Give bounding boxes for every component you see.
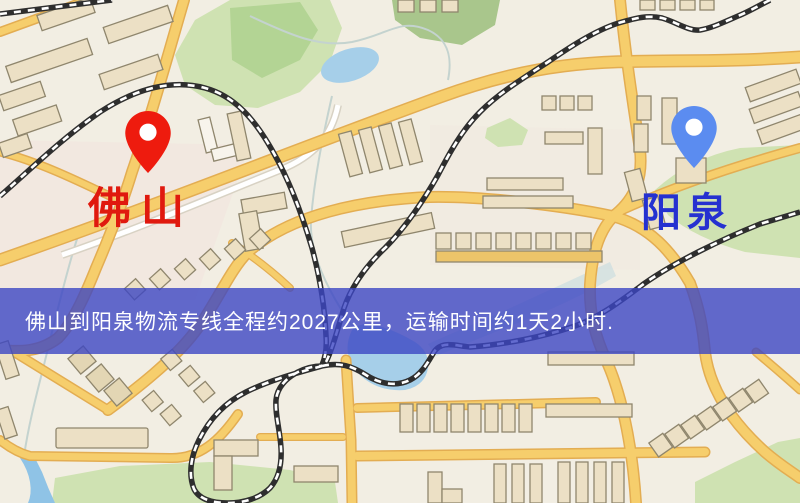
map-canvas[interactable]: 佛山 阳泉 佛山到阳泉物流专线全程约2027公里，运输时间约1天2小时. [0, 0, 800, 503]
origin-label: 佛山 [88, 174, 194, 236]
pin-icon [125, 111, 171, 173]
route-info-banner: 佛山到阳泉物流专线全程约2027公里，运输时间约1天2小时. [0, 288, 800, 354]
destination-pin-marker[interactable] [671, 106, 717, 168]
origin-pin-marker[interactable] [125, 111, 171, 173]
map-artwork [0, 0, 800, 503]
pin-hole [139, 124, 156, 141]
pin-body [125, 111, 170, 173]
pin-body [671, 106, 716, 168]
destination-label: 阳泉 [641, 180, 733, 238]
pin-hole [685, 119, 702, 136]
pin-icon [671, 106, 717, 168]
route-info-text: 佛山到阳泉物流专线全程约2027公里，运输时间约1天2小时. [0, 306, 614, 336]
